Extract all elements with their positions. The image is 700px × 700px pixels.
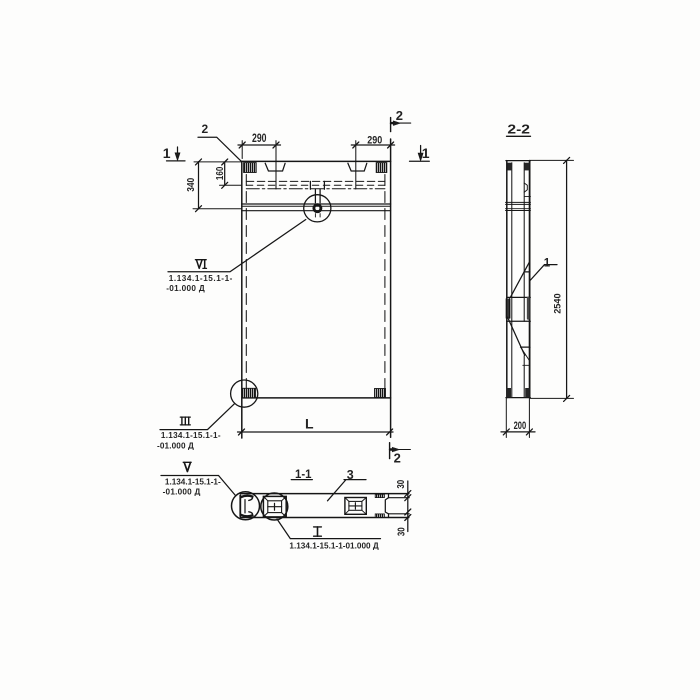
svg-text:L: L (305, 416, 314, 432)
svg-text:3: 3 (347, 468, 354, 482)
svg-text:1: 1 (163, 145, 171, 161)
svg-text:2-2: 2-2 (507, 123, 530, 137)
svg-text:1.134.1-15.1-1-01.000 Д: 1.134.1-15.1-1-01.000 Д (289, 541, 378, 550)
svg-text:2: 2 (201, 122, 208, 136)
svg-text:1-1: 1-1 (295, 469, 312, 481)
svg-text:2: 2 (396, 108, 403, 123)
svg-text:30: 30 (396, 527, 407, 536)
svg-text:290: 290 (367, 134, 382, 146)
svg-text:160: 160 (215, 166, 226, 180)
svg-text:1.134.1-15.1-1-: 1.134.1-15.1-1- (165, 477, 221, 486)
svg-text:1: 1 (422, 145, 430, 161)
svg-text:2: 2 (394, 451, 401, 466)
svg-text:200: 200 (514, 420, 527, 432)
svg-text:-01.000 Д: -01.000 Д (157, 441, 194, 450)
svg-text:2540: 2540 (553, 293, 563, 313)
svg-text:290: 290 (252, 131, 267, 145)
svg-text:-01.000 Д: -01.000 Д (166, 284, 205, 293)
svg-text:1: 1 (544, 257, 551, 269)
svg-text:-01.000 Д: -01.000 Д (163, 487, 201, 496)
svg-text:1.134.1-15.1-1-: 1.134.1-15.1-1- (161, 431, 221, 440)
svg-text:1.134.1-15.1-1-: 1.134.1-15.1-1- (169, 274, 233, 283)
svg-text:30: 30 (396, 480, 407, 489)
svg-text:340: 340 (186, 178, 197, 192)
